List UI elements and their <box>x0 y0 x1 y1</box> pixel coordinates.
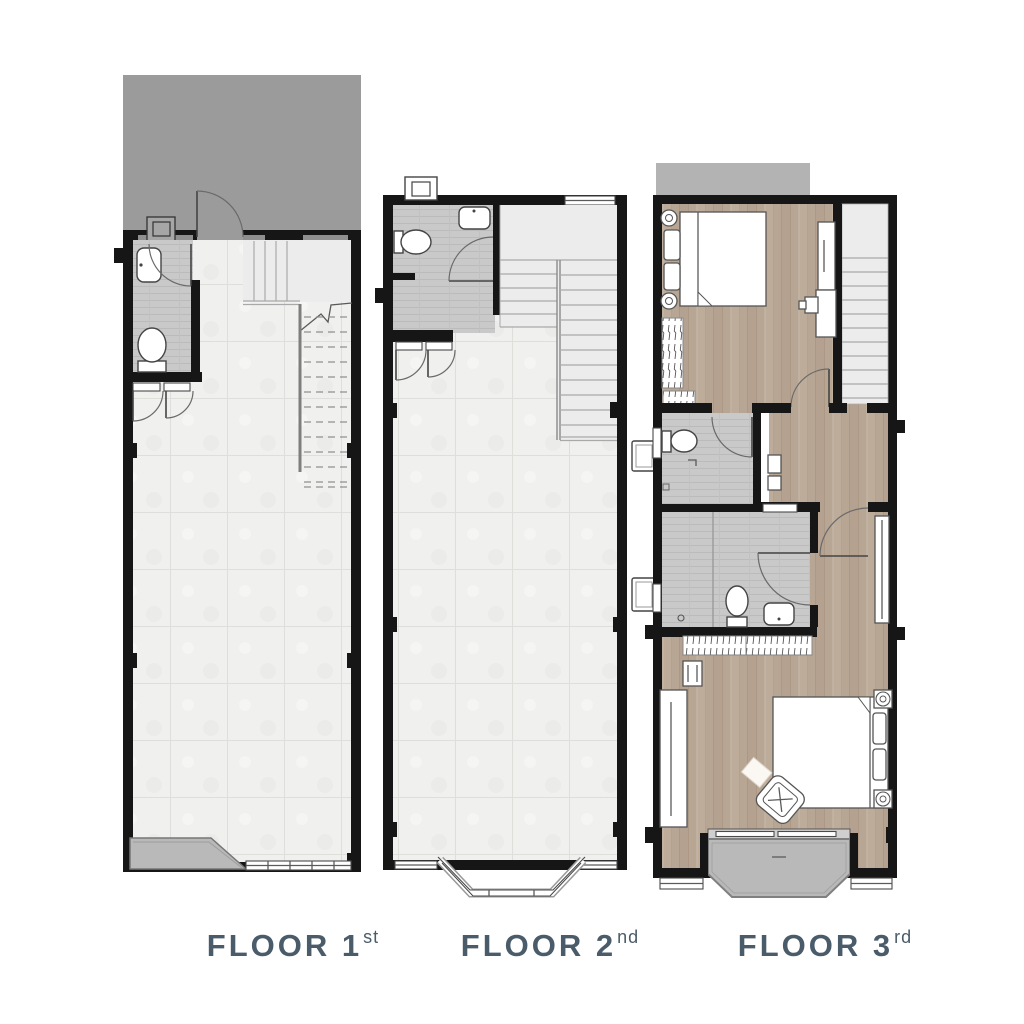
hall-shelves <box>768 455 781 490</box>
floor-3-label-ordinal: rd <box>894 927 912 947</box>
floor-3-plan <box>645 163 905 897</box>
bathroom-sink <box>459 207 490 229</box>
floor-1-label-ordinal: st <box>363 927 379 947</box>
bathroom-sink <box>137 248 161 282</box>
floor-2-plan <box>375 177 656 896</box>
balcony <box>700 829 858 897</box>
top-window <box>565 196 615 205</box>
floor-3-label-number: 3 <box>873 928 893 963</box>
floor-1-label-text: FLOOR <box>207 928 331 963</box>
floor-plans-graphic <box>0 0 1024 1024</box>
toilet <box>138 328 166 372</box>
toilet <box>394 230 431 254</box>
wardrobe-row <box>683 636 812 655</box>
floor-2-label-ordinal: nd <box>617 927 639 947</box>
floor-2-label-number: 2 <box>596 928 616 963</box>
sliding-door <box>778 832 836 837</box>
front-window <box>246 861 351 870</box>
closet <box>660 690 687 827</box>
floor-1-plan <box>114 75 361 872</box>
floor-1-label: FLOOR 1st <box>183 928 403 964</box>
sliding-door <box>716 832 774 837</box>
floor-3-label-text: FLOOR <box>738 928 862 963</box>
floor-1-bathroom <box>123 240 202 382</box>
floor-2-label: FLOOR 2nd <box>440 928 660 964</box>
ac-units <box>632 441 656 611</box>
bathroom-sink <box>764 603 794 625</box>
wall-basin <box>405 177 437 200</box>
bathroom-master <box>662 504 818 627</box>
bathroom-window <box>763 504 797 512</box>
floor-1-label-number: 1 <box>342 928 362 963</box>
floor-3-staircase <box>833 204 888 404</box>
toilet <box>662 430 697 452</box>
bathroom-upper <box>662 413 769 504</box>
floor-2-bathroom <box>383 205 501 342</box>
dresser <box>683 661 702 686</box>
toilet <box>726 586 748 627</box>
floor-3-label: FLOOR 3rd <box>715 928 935 964</box>
carport-basin <box>147 217 175 241</box>
floor-plan-sheet: FLOOR 1st FLOOR 2nd FLOOR 3rd <box>0 0 1024 1024</box>
floor-2-label-text: FLOOR <box>461 928 585 963</box>
